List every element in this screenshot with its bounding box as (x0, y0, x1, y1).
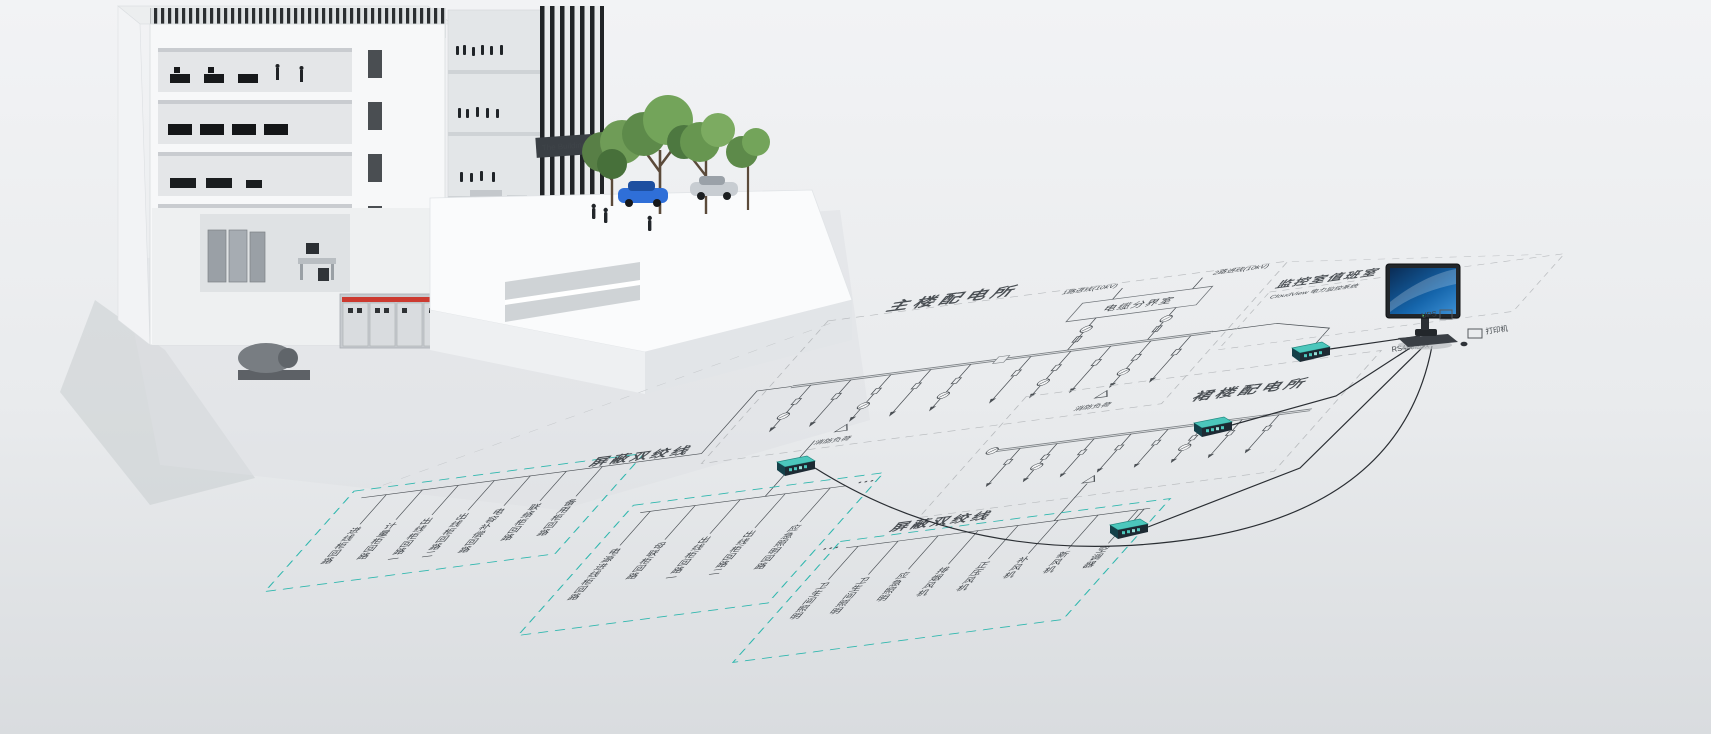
control-cabinets (208, 230, 265, 282)
desk (298, 258, 336, 264)
mouse (1461, 342, 1468, 347)
scene: The Building (0, 0, 1711, 734)
desk-monitor (306, 243, 319, 254)
office-chair (318, 268, 329, 281)
